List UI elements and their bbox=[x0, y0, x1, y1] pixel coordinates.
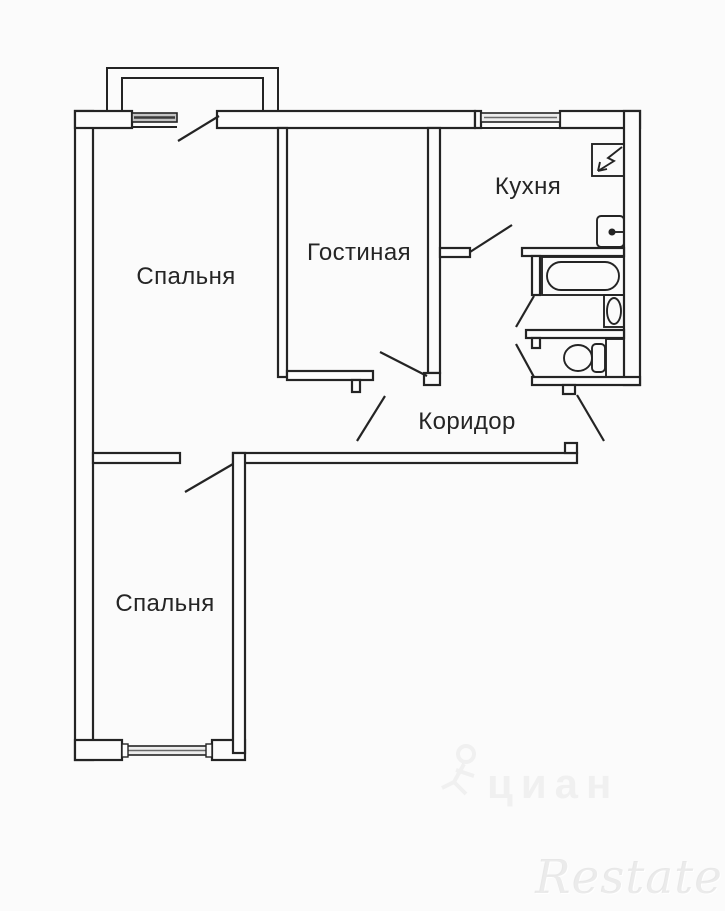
wall-kitchen-stub bbox=[440, 248, 470, 257]
bathtub-inner bbox=[547, 262, 619, 290]
washbasin-bowl bbox=[607, 298, 621, 324]
wall-living-bottom bbox=[287, 371, 373, 380]
living-room-door-leaf bbox=[380, 352, 427, 376]
bedroom-bottom-window-post-left bbox=[122, 744, 128, 757]
bedroom-bottom-door-leaf bbox=[185, 464, 233, 492]
toilet-icon bbox=[564, 339, 624, 377]
wall-left-exterior bbox=[75, 111, 93, 760]
living-door-post bbox=[352, 380, 360, 392]
bedroom-bottom-window-post-right bbox=[206, 744, 212, 757]
walls-group bbox=[75, 111, 640, 760]
toilet-bowl bbox=[564, 345, 592, 371]
balcony-door-leaf bbox=[178, 116, 219, 141]
wall-corridor-bottom bbox=[233, 453, 577, 463]
room-label-bedroom-bottom: Спальня bbox=[115, 590, 214, 618]
balcony-inner-wall bbox=[122, 78, 263, 111]
wall-bedroom-bottom-right bbox=[233, 453, 245, 753]
portal-watermark-icon bbox=[436, 742, 488, 804]
room-label-kitchen: Кухня bbox=[495, 173, 561, 201]
wall-top-middle bbox=[217, 111, 475, 128]
wall-toilet-left bbox=[532, 338, 540, 348]
wall-bathroom-top bbox=[522, 248, 624, 256]
portal-icon-body bbox=[442, 764, 474, 794]
wall-top-left bbox=[75, 111, 132, 128]
kitchen-door-leaf bbox=[470, 225, 512, 252]
balcony-outer-wall bbox=[107, 68, 278, 111]
wall-corridor-end-lip bbox=[565, 443, 577, 453]
room-label-bedroom-top: Спальня bbox=[136, 263, 235, 291]
toilet-duct-box bbox=[606, 339, 624, 377]
entrance-door-leaf bbox=[577, 395, 604, 441]
wall-bottom-left bbox=[75, 740, 122, 760]
room-label-living-room: Гостиная bbox=[307, 239, 411, 267]
wall-right-exterior bbox=[624, 111, 640, 385]
wall-entrance-side bbox=[532, 377, 640, 385]
toilet-tank bbox=[592, 344, 605, 372]
entrance-door-post bbox=[563, 385, 575, 394]
portal-watermark-text: циан bbox=[487, 760, 619, 808]
hall-door-leaf bbox=[357, 396, 385, 441]
kitchen-sink-faucet-knob bbox=[609, 229, 614, 234]
wall-living-kitchen bbox=[428, 128, 440, 373]
floorplan-image: Спальня Гостиная Кухня Коридор Спальня ц… bbox=[0, 0, 725, 911]
wall-bath-toilet-divider bbox=[526, 330, 624, 338]
vent-arrow-zigzag bbox=[598, 147, 622, 171]
balcony-group bbox=[107, 68, 278, 111]
bathtub-icon bbox=[542, 257, 624, 295]
bathroom-door-leaf bbox=[516, 296, 534, 327]
agency-watermark-text: Restate bbox=[535, 850, 723, 905]
wall-top-window-post bbox=[475, 111, 481, 128]
kitchen-sink-icon bbox=[597, 216, 624, 247]
portal-icon-head bbox=[458, 746, 474, 762]
room-label-corridor: Коридор bbox=[418, 408, 516, 436]
wall-bathroom-left bbox=[532, 256, 540, 295]
washbasin-icon bbox=[604, 295, 624, 327]
wall-bedroom-bottom-top bbox=[93, 453, 180, 463]
vent-shaft-icon bbox=[592, 144, 624, 176]
wall-bedroom-living bbox=[278, 128, 287, 377]
